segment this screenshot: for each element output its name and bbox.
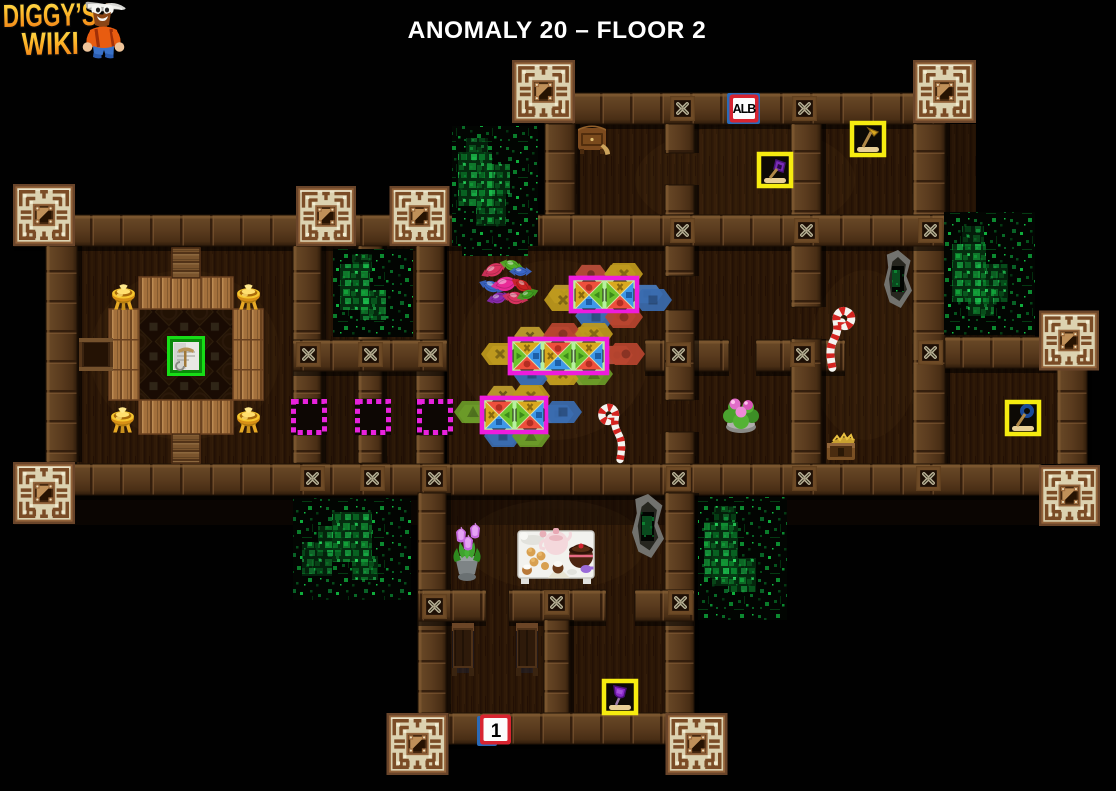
svg-text:ANOMALY 20 – FLOOR 2: ANOMALY 20 – FLOOR 2 bbox=[408, 17, 707, 44]
svg-text:1: 1 bbox=[491, 721, 502, 742]
svg-text:WIKI: WIKI bbox=[21, 25, 79, 62]
svg-text:ALB: ALB bbox=[733, 102, 757, 116]
